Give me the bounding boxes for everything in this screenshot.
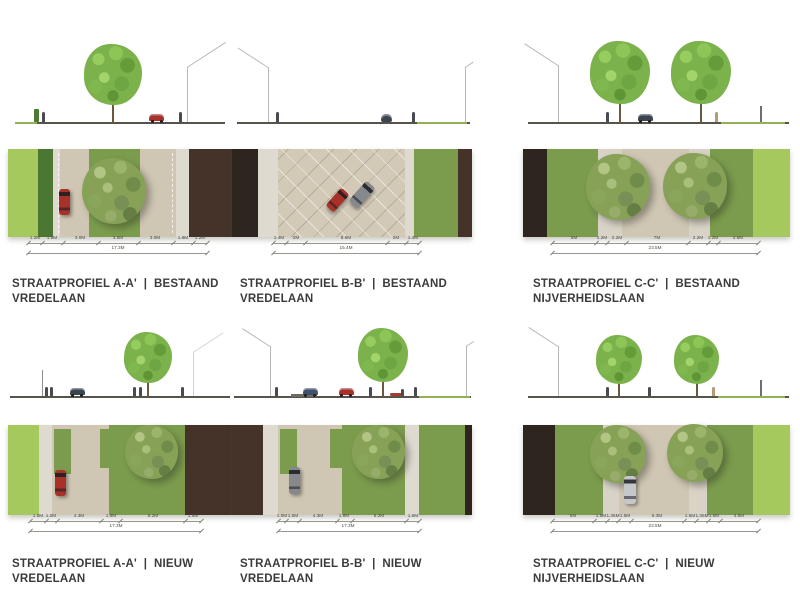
segment-dimension: 3.5M xyxy=(113,236,123,241)
person-figure xyxy=(712,387,715,397)
segment-dimension: 4.3M xyxy=(74,514,84,519)
plan-view-a-a-nieuw xyxy=(8,425,232,515)
plan-strip-buildingDark xyxy=(523,425,555,515)
lane-dash-line xyxy=(172,153,173,234)
street-profiles-sheet: 1.2M1.8M3.0M3.5M3.0M1.8M1.2M17.3MSTRAATP… xyxy=(0,0,800,600)
car-icon xyxy=(638,114,653,121)
dimension-line-a-a-bestaand: 1.2M1.8M3.0M3.5M3.0M1.8M1.2M17.3M xyxy=(28,235,207,259)
ground-line xyxy=(10,396,230,398)
green-parking-bay xyxy=(100,429,110,469)
segment-dimension: 1.5M xyxy=(619,514,629,519)
profile-title: STRAATPROFIEL A-A' | BESTAAND xyxy=(12,277,219,292)
plan-strip-grassLight xyxy=(753,425,790,515)
tree-canopy-icon xyxy=(352,425,405,480)
segment-dimension: 2M xyxy=(292,236,299,241)
segment-dimension: 6.3M xyxy=(652,514,662,519)
segment-dimension: 4.3M xyxy=(313,514,323,519)
segment-dimension: 1.4M xyxy=(407,236,417,241)
tree-icon xyxy=(596,335,642,384)
post-icon xyxy=(760,380,762,396)
dimension-tick xyxy=(199,529,204,534)
elevation-view-b-b-nieuw xyxy=(232,332,472,400)
house-gable-wall xyxy=(187,67,188,122)
person-figure xyxy=(276,112,279,123)
house-gable-roof xyxy=(466,341,474,347)
segment-dimension: 1.5M xyxy=(709,514,719,519)
house-gable-roof xyxy=(242,328,270,347)
profile-title: STRAATPROFIEL A-A' | NIEUW xyxy=(12,557,193,572)
segment-dimension: 1.2M xyxy=(30,236,40,241)
segment-dimension: 1.0M xyxy=(277,514,287,519)
tree-icon xyxy=(84,44,142,105)
grass-verge-line xyxy=(721,122,785,124)
profile-street-name: NIJVERHEIDSLAAN xyxy=(533,292,645,307)
dimension-tick xyxy=(205,241,210,246)
dimension-line-b-b-nieuw: 1.0M1.5M4.3M1.8M6.2M1.5M17.3M xyxy=(278,513,420,537)
segment-dimension: 2.2M xyxy=(693,236,703,241)
plan-view-a-a-bestaand xyxy=(8,149,232,237)
tree-canopy-icon xyxy=(125,425,178,480)
car-icon xyxy=(339,388,354,395)
profile-street-name: VREDELAAN xyxy=(12,292,85,307)
segment-dimension: 1.2M xyxy=(708,236,718,241)
total-dimension: 15.4M xyxy=(339,246,352,251)
plan-strip-sidewalk xyxy=(263,425,277,515)
house-gable-wall xyxy=(465,67,466,122)
car-rear-icon xyxy=(381,114,392,122)
plan-strip-sidewalk xyxy=(405,425,419,515)
plan-strip-grassMed xyxy=(414,149,457,237)
person-figure xyxy=(606,112,609,123)
segment-dimension: 7M xyxy=(654,236,661,241)
person-figure xyxy=(133,387,136,397)
person-figure xyxy=(401,389,404,396)
plan-strips xyxy=(8,425,232,515)
post-icon xyxy=(760,106,762,122)
house-gable-roof xyxy=(528,327,558,347)
segment-dimension: 4.5M xyxy=(734,514,744,519)
plan-view-b-b-bestaand xyxy=(232,149,472,237)
profile-title: STRAATPROFIEL B-B' | BESTAAND xyxy=(240,277,447,292)
segment-dimension: 1.35M xyxy=(606,514,619,519)
lamppost-icon xyxy=(42,370,43,396)
plan-strips xyxy=(232,425,472,515)
profile-street-name: VREDELAAN xyxy=(12,572,85,587)
elevation-view-c-c-nieuw xyxy=(523,332,790,400)
total-line xyxy=(30,531,200,532)
person-figure xyxy=(181,387,184,397)
elevation-view-b-b-bestaand xyxy=(232,14,472,126)
person-figure xyxy=(275,387,278,397)
segment-dimension: 4.5M xyxy=(733,236,743,241)
plan-strip-building xyxy=(458,149,472,237)
elevation-view-a-a-nieuw xyxy=(8,332,232,400)
tree-icon xyxy=(674,335,720,384)
total-dimension: 23.5M xyxy=(649,246,662,251)
house-gable-wall xyxy=(558,346,559,396)
segment-dimension: 1.35M xyxy=(695,514,708,519)
house-gable-wall xyxy=(193,352,194,396)
tree-icon xyxy=(124,332,172,383)
dimension-tick xyxy=(199,519,204,524)
house-gable-roof xyxy=(465,62,474,68)
segment-dimension: 6.2M xyxy=(147,514,157,519)
segment-dimension: 2.2M xyxy=(612,236,622,241)
segment-dimension: 6.2M xyxy=(374,514,384,519)
dimension-tick xyxy=(756,241,761,246)
car-icon xyxy=(149,114,164,121)
dimension-tick xyxy=(417,251,422,256)
profile-title: STRAATPROFIEL C-C' | BESTAAND xyxy=(533,277,740,292)
dimension-tick xyxy=(756,529,761,534)
person-figure xyxy=(50,387,53,397)
person-figure xyxy=(412,112,415,123)
segment-line xyxy=(552,521,758,522)
elevation-view-c-c-bestaand xyxy=(523,14,790,126)
tree-canopy-icon xyxy=(667,424,723,482)
segment-dimension: 2M xyxy=(393,236,400,241)
total-dimension: 17.3M xyxy=(111,246,124,251)
plan-strip-buildingDark xyxy=(232,149,258,237)
tree-canopy-icon xyxy=(586,154,650,220)
tree-icon xyxy=(590,41,650,104)
parked-car-icon xyxy=(289,467,300,494)
plan-strip-grassLight xyxy=(8,149,38,237)
person-figure xyxy=(414,387,417,397)
green-parking-bay xyxy=(54,429,71,474)
person-figure xyxy=(648,387,651,397)
total-line xyxy=(28,253,207,254)
profile-street-name: VREDELAAN xyxy=(240,572,313,587)
parked-car-icon xyxy=(624,476,636,504)
car-icon xyxy=(303,388,318,395)
car-icon xyxy=(70,388,85,395)
plan-strip-grassMed xyxy=(419,425,465,515)
plan-strip-sidewalk xyxy=(39,425,51,515)
tree-canopy-icon xyxy=(82,158,146,224)
person-figure xyxy=(139,387,142,397)
dimension-tick xyxy=(417,529,422,534)
segment-dimension: 1.5M xyxy=(407,514,417,519)
person-figure xyxy=(715,112,718,123)
segment-line xyxy=(273,243,419,244)
total-dimension: 23.5M xyxy=(649,524,662,529)
profile-street-name: VREDELAAN xyxy=(240,292,313,307)
segment-dimension: 8.6M xyxy=(341,236,351,241)
green-parking-bay xyxy=(330,429,342,469)
grass-verge-line xyxy=(417,122,467,124)
segment-line xyxy=(28,243,207,244)
segment-dimension: 1.2M xyxy=(195,236,205,241)
person-figure xyxy=(369,387,372,397)
plan-strips xyxy=(523,149,790,237)
plan-strip-building xyxy=(232,425,263,515)
tree-canopy-icon xyxy=(663,153,727,219)
profile-title: STRAATPROFIEL B-B' | NIEUW xyxy=(240,557,422,572)
house-gable-wall xyxy=(268,67,269,122)
house-gable-roof xyxy=(524,43,558,66)
hedge-icon xyxy=(34,109,39,122)
dimension-line-b-b-bestaand: 1.4M2M8.6M2M1.4M15.4M xyxy=(273,235,419,259)
total-line xyxy=(278,531,420,532)
dimension-line-c-c-bestaand: 5M1.2M2.2M7M2.2M1.2M4.5M23.5M xyxy=(552,235,758,259)
total-line xyxy=(552,253,758,254)
plan-view-c-c-bestaand xyxy=(523,149,790,237)
plan-strip-buildingDark xyxy=(523,149,547,237)
plan-strip-building xyxy=(189,149,232,237)
segment-dimension: 1.8M xyxy=(339,514,349,519)
house-gable-wall xyxy=(558,65,559,122)
dimension-line-a-a-nieuw: 1.5M1.0M4.3M1.8M6.2M1.5M17.3M xyxy=(30,513,200,537)
elevation-view-a-a-bestaand xyxy=(8,14,232,126)
segment-dimension: 3.0M xyxy=(75,236,85,241)
segment-dimension: 1.8M xyxy=(178,236,188,241)
person-figure xyxy=(42,112,45,123)
plan-strip-grassLight xyxy=(753,149,790,237)
segment-dimension: 5M xyxy=(570,514,577,519)
house-gable-roof xyxy=(238,47,269,67)
segment-dimension: 1.5M xyxy=(685,514,695,519)
segment-dimension: 1.2M xyxy=(597,236,607,241)
plan-strip-sidewalk xyxy=(176,149,189,237)
ground-line xyxy=(15,122,226,124)
house-gable-wall xyxy=(466,346,467,396)
parked-car-icon xyxy=(59,189,70,215)
total-line xyxy=(552,531,758,532)
segment-dimension: 1.8M xyxy=(47,236,57,241)
plan-strip-building xyxy=(185,425,232,515)
profile-title: STRAATPROFIEL C-C' | NIEUW xyxy=(533,557,715,572)
plan-strips xyxy=(523,425,790,515)
segment-dimension: 5M xyxy=(571,236,578,241)
tree-icon xyxy=(671,41,731,104)
total-dimension: 17.3M xyxy=(109,524,122,529)
segment-dimension: 1.5M xyxy=(33,514,43,519)
segment-dimension: 1.0M xyxy=(46,514,56,519)
dimension-tick xyxy=(417,241,422,246)
person-figure xyxy=(45,387,48,397)
person-figure xyxy=(179,112,182,123)
segment-dimension: 1.8M xyxy=(106,514,116,519)
grass-verge-line xyxy=(419,396,469,398)
total-dimension: 17.3M xyxy=(342,524,355,529)
plan-view-b-b-nieuw xyxy=(232,425,472,515)
plan-view-c-c-nieuw xyxy=(523,425,790,515)
dimension-tick xyxy=(756,251,761,256)
house-gable-roof xyxy=(187,42,226,68)
dimension-tick xyxy=(756,519,761,524)
house-gable-roof xyxy=(193,332,224,352)
tree-canopy-icon xyxy=(590,425,646,483)
segment-dimension: 1.5M xyxy=(595,514,605,519)
grass-verge-line xyxy=(718,396,785,398)
dimension-line-c-c-nieuw: 5M1.5M1.35M1.5M6.3M1.5M1.35M1.5M4.5M23.5… xyxy=(552,513,758,537)
segment-line xyxy=(552,243,758,244)
dimension-tick xyxy=(417,519,422,524)
house-gable-wall xyxy=(270,346,271,396)
profile-street-name: NIJVERHEIDSLAAN xyxy=(533,572,645,587)
plan-strip-buildingDark xyxy=(465,425,472,515)
tree-icon xyxy=(358,328,408,382)
segment-dimension: 3.0M xyxy=(150,236,160,241)
plan-strip-grassLight xyxy=(8,425,39,515)
dimension-tick xyxy=(205,251,210,256)
plan-strip-sidewalk xyxy=(405,149,415,237)
segment-dimension: 1.5M xyxy=(288,514,298,519)
plan-strip-sidewalk xyxy=(258,149,277,237)
plan-strip-hedge xyxy=(38,149,53,237)
segment-dimension: 1.5M xyxy=(188,514,198,519)
parked-car-icon xyxy=(55,470,66,496)
total-line xyxy=(273,253,419,254)
segment-dimension: 1.4M xyxy=(274,236,284,241)
person-figure xyxy=(606,387,609,397)
